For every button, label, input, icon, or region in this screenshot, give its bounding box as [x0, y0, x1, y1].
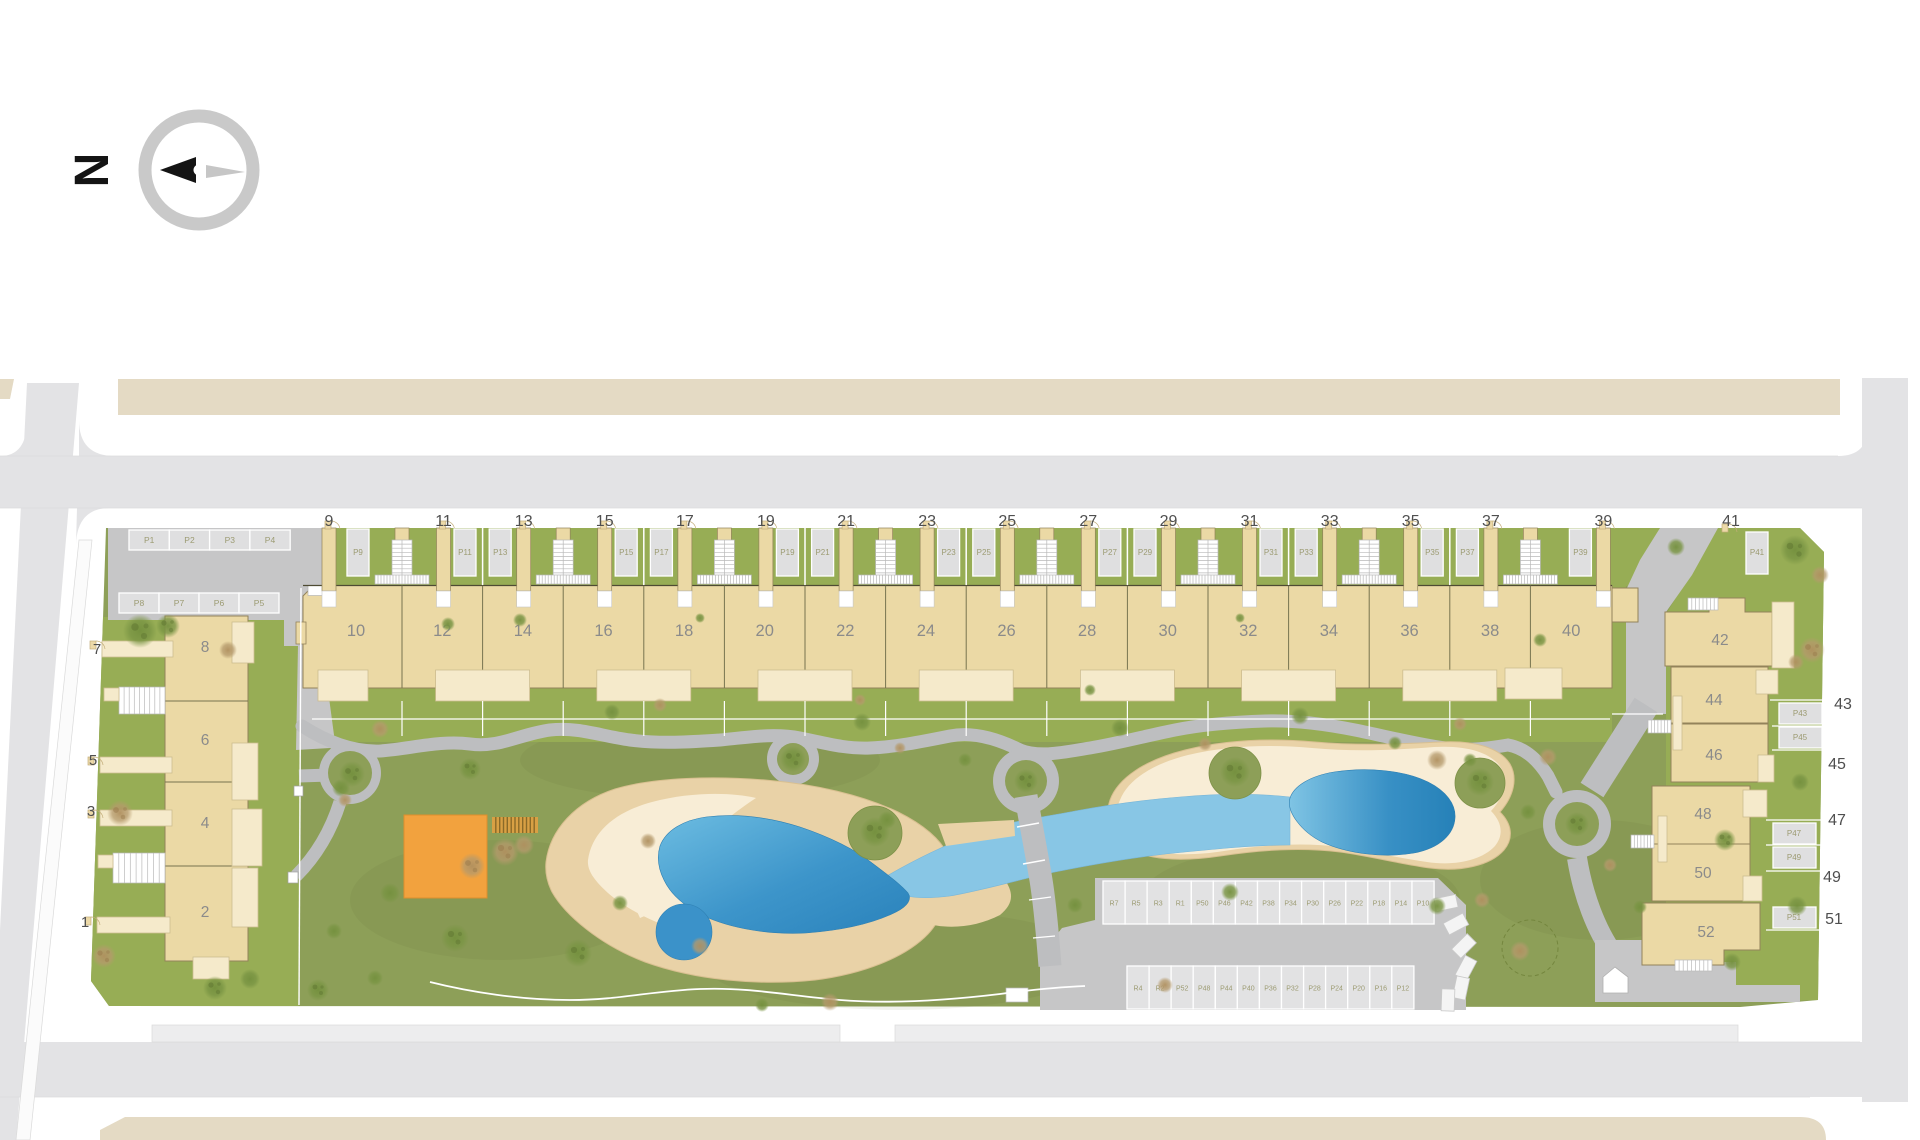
svg-text:26: 26 — [997, 622, 1015, 640]
svg-text:30: 30 — [1159, 622, 1177, 640]
svg-text:P14: P14 — [1395, 901, 1408, 908]
svg-text:11: 11 — [435, 513, 452, 530]
svg-text:P23: P23 — [941, 548, 956, 557]
svg-text:46: 46 — [1705, 747, 1722, 764]
svg-text:13: 13 — [515, 513, 533, 530]
svg-text:16: 16 — [594, 622, 612, 640]
svg-text:45: 45 — [1828, 756, 1846, 773]
svg-text:P42: P42 — [1240, 901, 1253, 908]
svg-text:48: 48 — [1694, 806, 1711, 823]
svg-text:P28: P28 — [1308, 986, 1321, 993]
svg-text:P52: P52 — [1176, 986, 1189, 993]
svg-text:47: 47 — [1828, 812, 1846, 829]
svg-text:40: 40 — [1562, 622, 1580, 640]
svg-text:P24: P24 — [1330, 986, 1343, 993]
svg-text:P13: P13 — [493, 548, 508, 557]
svg-text:R5: R5 — [1132, 901, 1141, 908]
svg-text:P40: P40 — [1242, 986, 1255, 993]
svg-text:P21: P21 — [815, 548, 830, 557]
svg-text:17: 17 — [676, 513, 694, 530]
svg-text:P10: P10 — [1417, 901, 1430, 908]
svg-text:41: 41 — [1722, 513, 1740, 530]
svg-text:15: 15 — [596, 513, 614, 530]
svg-text:2: 2 — [201, 904, 210, 921]
svg-text:P31: P31 — [1264, 548, 1279, 557]
svg-text:28: 28 — [1078, 622, 1096, 640]
svg-text:P36: P36 — [1264, 986, 1277, 993]
svg-text:34: 34 — [1320, 622, 1338, 640]
svg-text:43: 43 — [1834, 696, 1852, 713]
svg-text:P22: P22 — [1351, 901, 1364, 908]
svg-text:36: 36 — [1400, 622, 1418, 640]
svg-text:P26: P26 — [1328, 901, 1341, 908]
svg-text:24: 24 — [917, 622, 935, 640]
svg-text:P45: P45 — [1793, 733, 1808, 742]
svg-text:P49: P49 — [1787, 853, 1802, 862]
svg-text:P37: P37 — [1460, 548, 1475, 557]
svg-text:35: 35 — [1402, 513, 1420, 530]
svg-text:51: 51 — [1825, 911, 1843, 928]
svg-text:P33: P33 — [1299, 548, 1314, 557]
svg-text:21: 21 — [837, 513, 855, 530]
svg-text:N: N — [66, 153, 119, 188]
svg-text:P11: P11 — [458, 548, 472, 557]
svg-text:P17: P17 — [654, 548, 669, 557]
svg-text:7: 7 — [93, 641, 101, 658]
svg-text:R7: R7 — [1110, 901, 1119, 908]
svg-text:27: 27 — [1079, 513, 1097, 530]
svg-text:42: 42 — [1711, 632, 1728, 649]
svg-text:10: 10 — [347, 622, 365, 640]
svg-text:P1: P1 — [144, 535, 155, 545]
svg-text:P7: P7 — [174, 598, 185, 608]
svg-text:9: 9 — [325, 513, 334, 530]
svg-text:P15: P15 — [619, 548, 634, 557]
svg-text:6: 6 — [201, 732, 210, 749]
svg-text:P46: P46 — [1218, 901, 1231, 908]
svg-text:3: 3 — [87, 803, 95, 820]
svg-text:29: 29 — [1160, 513, 1178, 530]
svg-text:P3: P3 — [225, 535, 236, 545]
svg-text:P27: P27 — [1103, 548, 1118, 557]
svg-text:49: 49 — [1823, 869, 1841, 886]
svg-text:P29: P29 — [1138, 548, 1153, 557]
svg-text:23: 23 — [918, 513, 936, 530]
svg-text:P44: P44 — [1220, 986, 1233, 993]
svg-text:P39: P39 — [1573, 548, 1588, 557]
svg-text:31: 31 — [1241, 513, 1259, 530]
svg-text:18: 18 — [675, 622, 693, 640]
svg-text:1: 1 — [81, 914, 89, 931]
svg-text:R3: R3 — [1154, 901, 1163, 908]
svg-text:P12: P12 — [1397, 986, 1410, 993]
svg-text:44: 44 — [1705, 692, 1723, 709]
svg-text:33: 33 — [1321, 513, 1339, 530]
svg-text:4: 4 — [201, 815, 210, 832]
svg-text:P25: P25 — [977, 548, 992, 557]
svg-text:P5: P5 — [254, 598, 265, 608]
svg-text:38: 38 — [1481, 622, 1499, 640]
svg-text:50: 50 — [1694, 865, 1712, 882]
svg-text:22: 22 — [836, 622, 854, 640]
svg-text:P4: P4 — [265, 535, 276, 545]
svg-text:P30: P30 — [1306, 901, 1319, 908]
svg-text:P2: P2 — [184, 535, 195, 545]
svg-text:P35: P35 — [1425, 548, 1440, 557]
svg-text:R1: R1 — [1176, 901, 1185, 908]
svg-text:25: 25 — [998, 513, 1016, 530]
svg-text:52: 52 — [1697, 924, 1714, 941]
svg-text:P43: P43 — [1793, 709, 1808, 718]
svg-text:32: 32 — [1239, 622, 1257, 640]
svg-text:5: 5 — [89, 752, 97, 769]
svg-text:P6: P6 — [214, 598, 225, 608]
svg-text:R4: R4 — [1134, 986, 1143, 993]
svg-text:P9: P9 — [353, 548, 363, 557]
svg-text:P20: P20 — [1352, 986, 1365, 993]
svg-text:20: 20 — [756, 622, 774, 640]
svg-text:P19: P19 — [780, 548, 795, 557]
svg-text:P47: P47 — [1787, 829, 1802, 838]
svg-text:P16: P16 — [1375, 986, 1388, 993]
svg-text:P48: P48 — [1198, 986, 1211, 993]
svg-text:P8: P8 — [134, 598, 145, 608]
svg-text:P18: P18 — [1373, 901, 1386, 908]
svg-text:19: 19 — [757, 513, 775, 530]
svg-text:8: 8 — [201, 639, 210, 656]
svg-text:P50: P50 — [1196, 901, 1209, 908]
svg-text:P32: P32 — [1286, 986, 1299, 993]
svg-text:P41: P41 — [1750, 548, 1765, 557]
svg-text:37: 37 — [1482, 513, 1500, 530]
svg-text:P34: P34 — [1284, 901, 1297, 908]
svg-text:39: 39 — [1595, 513, 1613, 530]
svg-text:P38: P38 — [1262, 901, 1275, 908]
